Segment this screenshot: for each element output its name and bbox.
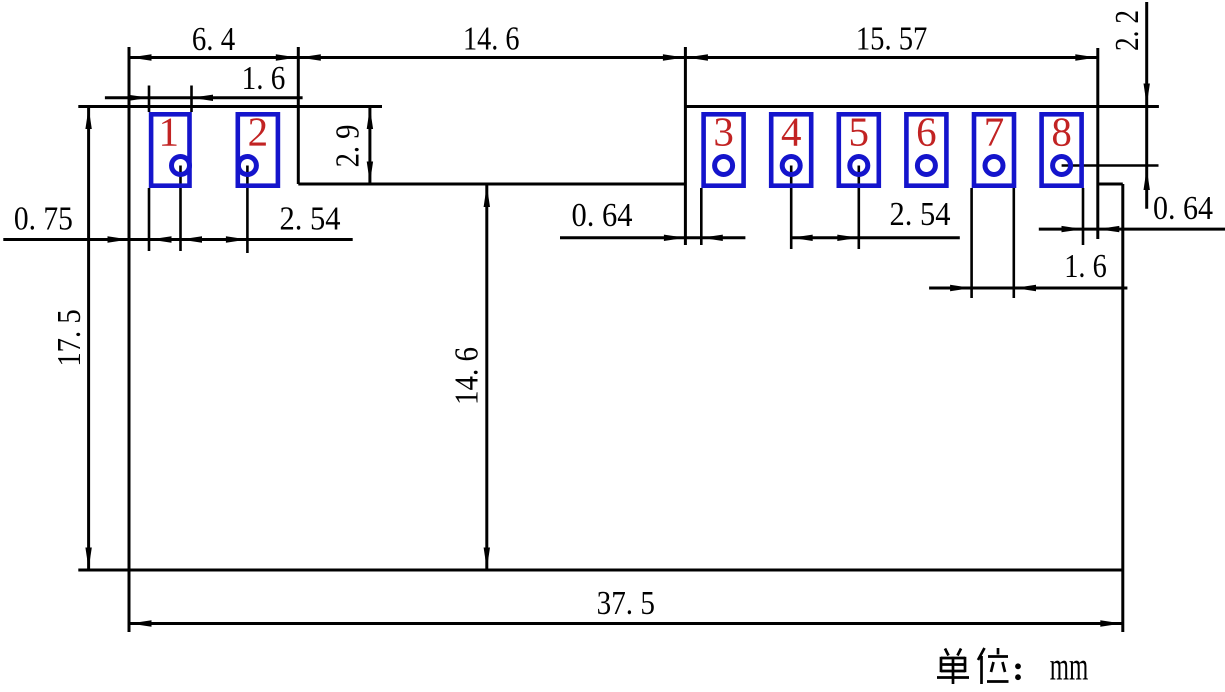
svg-text:14. 6: 14. 6 xyxy=(449,347,486,405)
svg-text:37. 5: 37. 5 xyxy=(597,585,655,622)
svg-text:15. 57: 15. 57 xyxy=(856,21,928,58)
svg-text:6: 6 xyxy=(916,109,937,155)
svg-text:mm: mm xyxy=(1050,645,1089,689)
svg-text:0. 64: 0. 64 xyxy=(1153,190,1213,227)
svg-text:5: 5 xyxy=(849,109,870,155)
svg-text:3: 3 xyxy=(713,109,734,155)
svg-text:14. 6: 14. 6 xyxy=(463,21,520,58)
svg-text:17. 5: 17. 5 xyxy=(51,309,88,366)
svg-text:8: 8 xyxy=(1051,109,1072,155)
svg-text:0. 64: 0. 64 xyxy=(572,197,633,234)
svg-text:2. 54: 2. 54 xyxy=(280,201,341,238)
svg-text:2. 9: 2. 9 xyxy=(329,125,366,168)
svg-text:2. 2: 2. 2 xyxy=(1109,10,1146,51)
svg-text:7: 7 xyxy=(984,109,1005,155)
svg-text:1: 1 xyxy=(159,109,180,155)
svg-text:2. 54: 2. 54 xyxy=(890,196,951,233)
svg-text:0. 75: 0. 75 xyxy=(14,201,73,238)
svg-text:2: 2 xyxy=(248,109,269,155)
svg-text:6. 4: 6. 4 xyxy=(192,21,235,58)
svg-text:1. 6: 1. 6 xyxy=(1064,248,1107,285)
svg-text:4: 4 xyxy=(781,109,802,155)
svg-text:1. 6: 1. 6 xyxy=(242,60,286,97)
